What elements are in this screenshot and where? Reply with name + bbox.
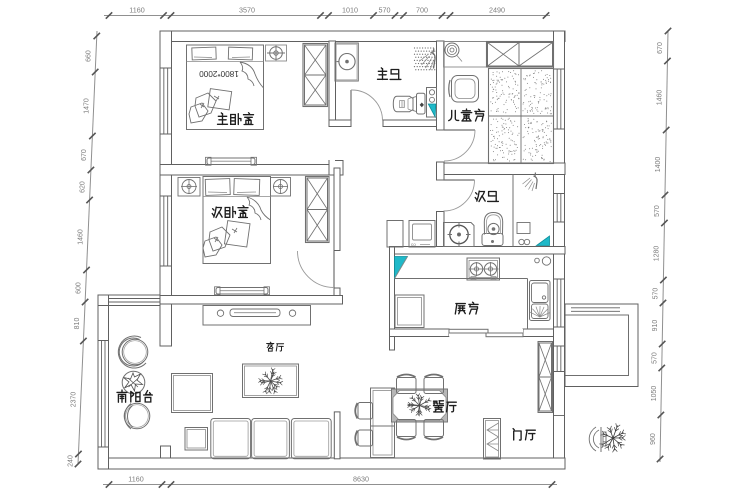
svg-text:co: co [411,242,416,247]
svg-text:1010: 1010 [342,6,358,15]
svg-text:570: 570 [651,352,658,364]
svg-text:810: 810 [74,318,81,330]
svg-text:3570: 3570 [239,6,255,15]
svg-text:1160: 1160 [128,475,143,484]
svg-text:8630: 8630 [353,475,369,484]
svg-text:2370: 2370 [70,392,77,408]
svg-text:2490: 2490 [489,6,505,15]
svg-text:960: 960 [650,433,657,445]
svg-text:600: 600 [75,282,82,294]
svg-text:1050: 1050 [651,386,658,402]
svg-text:670: 670 [657,42,664,54]
svg-text:660: 660 [85,50,92,62]
svg-text:700: 700 [416,6,428,15]
svg-text:1280: 1280 [653,246,660,262]
svg-text:910: 910 [652,320,659,332]
svg-text:570: 570 [379,6,391,15]
svg-text:1800*2000: 1800*2000 [199,69,239,78]
svg-text:240: 240 [68,455,75,467]
svg-text:620: 620 [80,181,87,193]
svg-text:1460: 1460 [656,90,663,106]
svg-text:570: 570 [653,288,660,300]
svg-text:570: 570 [654,205,661,217]
svg-text:670: 670 [81,149,88,161]
svg-text:1160: 1160 [129,6,144,15]
svg-text:1470: 1470 [83,98,90,114]
svg-text:1400: 1400 [655,157,662,173]
svg-text:1460: 1460 [78,229,85,245]
